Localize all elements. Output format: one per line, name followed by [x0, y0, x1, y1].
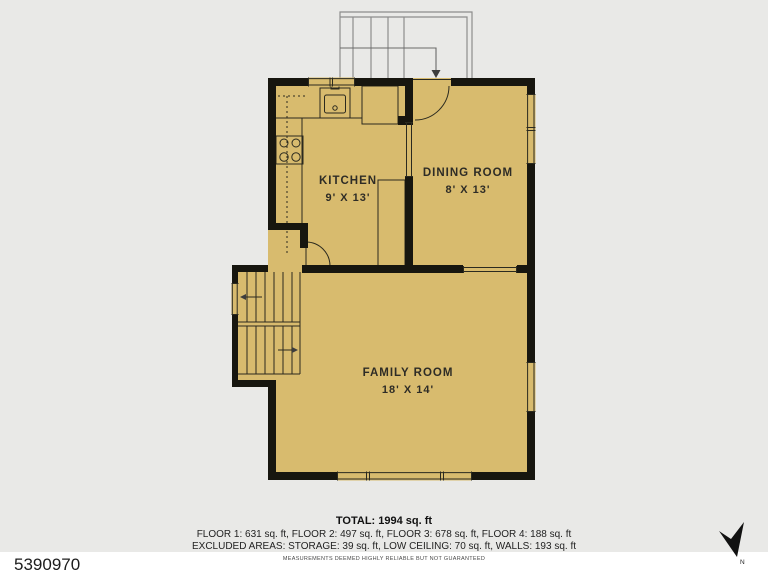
- family-room-dims: 18' X 14': [382, 384, 434, 396]
- summary-disclaimer: MEASUREMENTS DEEMED HIGHLY RELIABLE BUT …: [283, 556, 485, 562]
- floor-area: [232, 78, 535, 480]
- kitchen-dims: 9' X 13': [325, 192, 370, 204]
- window-kitchen-top: [308, 78, 355, 87]
- mls-number: 5390970: [14, 555, 80, 574]
- family-room-label: FAMILY ROOM: [363, 367, 454, 379]
- kitchen-label: KITCHEN: [319, 175, 377, 187]
- window-family-right: [527, 362, 536, 412]
- window-dining-right: [527, 94, 536, 164]
- floor-plan-canvas: KITCHEN 9' X 13' DINING ROOM 8' X 13' FA…: [0, 0, 768, 576]
- dining-room-label: DINING ROOM: [423, 167, 513, 179]
- summary-total: TOTAL: 1994 sq. ft: [336, 515, 433, 527]
- north-label: N: [740, 559, 745, 566]
- window-family-bottom: [337, 472, 472, 481]
- summary-floors: FLOOR 1: 631 sq. ft, FLOOR 2: 497 sq. ft…: [197, 529, 572, 540]
- window-stairwell-left: [232, 283, 239, 315]
- floor-plan-image: KITCHEN 9' X 13' DINING ROOM 8' X 13' FA…: [0, 0, 768, 576]
- summary-excluded: EXCLUDED AREAS: STORAGE: 39 sq. ft, LOW …: [192, 541, 576, 552]
- dining-room-dims: 8' X 13': [445, 184, 490, 196]
